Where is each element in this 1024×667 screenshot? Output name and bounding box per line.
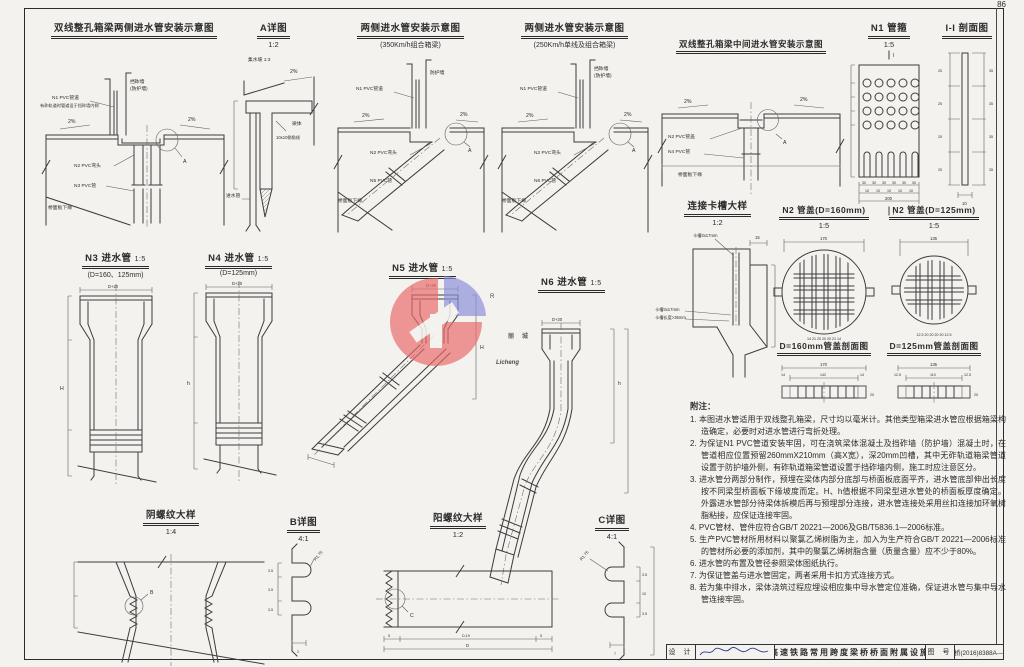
d17-detail-mark: B: [150, 590, 154, 596]
note-item: 5. 生产PVC管材所用材料以聚氯乙烯树脂为主，加入为生产符合GB/T 2022…: [690, 534, 1006, 558]
d12-inner: 110: [930, 373, 936, 377]
d9-dim: 170: [820, 236, 828, 241]
d3-drawing: 防护墙 N1 PVC管道 2% 2% N2 PVC弯头 N5 PVC管 桥面板下…: [328, 50, 493, 238]
d13-dim-h: H: [60, 386, 64, 392]
d6-dim: 30: [872, 181, 876, 185]
d18-lines: [292, 544, 311, 656]
d4-deck-label: 桥面板下缘: [502, 197, 526, 204]
d16-dim-top: D+20: [552, 317, 563, 322]
note-item: 3. 进水管分两部分制作，预埋在梁体内部分底部与桥面板底面平齐，进水管底部伸出长…: [690, 474, 1006, 522]
d4-title: 两侧进水管安装示意图: [521, 24, 627, 39]
note-item: 6. 进水管的布置及管径参照梁体图纸执行。: [690, 558, 1006, 570]
d18-dim: 3.5: [268, 569, 273, 573]
d1-n2-label: N2 PVC弯头: [74, 162, 101, 169]
d15-title: N5 进水管 1:5: [389, 264, 456, 279]
d19-dim: 5: [388, 634, 390, 638]
d6-dim: 10: [898, 189, 902, 193]
d7-dim: 35: [989, 102, 993, 106]
d11-inner: 142: [820, 373, 826, 377]
note-item: 1. 本图进水管适用于双线整孔箱梁，尺寸均以毫米计。其他类型箱梁进水管应根据箱梁…: [690, 414, 1006, 438]
d18-dim-b: 2: [297, 650, 299, 654]
d16-title: N6 进水管 1:5: [538, 278, 605, 293]
d4-detail-mark: A: [632, 148, 636, 154]
d11-title: D=160mm管盖剖面图: [777, 342, 872, 356]
d6-dim: 10: [909, 189, 913, 193]
d9-grate: [794, 254, 854, 330]
d12-title: D=125mm管盖剖面图: [887, 342, 982, 356]
d11-edge: 14: [781, 373, 785, 377]
d5-drawing: 2% 2% N2 PVC管盖 N4 PVC管 桥面板下缘 A: [652, 54, 850, 202]
page-number: 86: [997, 0, 1006, 9]
d20-title: C详图: [595, 516, 628, 531]
diagram-d6: N1 管箍 1:5 I 30 30 30 30 30 30 10 10 10 1…: [845, 18, 933, 221]
d1-detail-mark: A: [183, 159, 187, 165]
diagram-d7: I-I 剖面图 25 25 25 25 35 35 35 35 10: [928, 18, 1006, 209]
notes-title: 附注：: [690, 400, 1006, 413]
d4-lines: [498, 60, 652, 232]
d18-dim: 3.5: [268, 608, 273, 612]
d14-sub: (D=125mm): [186, 270, 291, 277]
note-item: 2. 为保证N1 PVC管道安装牢固，可在浇筑梁体混凝土及挡砟墙（防护墙）混凝土…: [690, 438, 1006, 474]
diagram-d20: C详图 4:1 R1.75 3.5 10 3.5 7: [562, 510, 662, 663]
d10-grate: [904, 258, 964, 324]
d17-drawing: B: [66, 536, 276, 666]
drawing-sheet: { "page": {"number": "86"}, "watermark":…: [0, 0, 1024, 667]
d4-n1-label: N1 PVC管道: [520, 85, 547, 92]
d20-drawing: R1.75 3.5 10 3.5 7: [562, 541, 662, 663]
d1-wall-label-1: 挡砟墙: [130, 78, 145, 85]
diagram-d10: N2 管盖(D=125mm) 1:5 135 12.5 20 20 20 20 …: [878, 200, 990, 342]
d20-dim: 10: [642, 592, 646, 596]
d13-dim-top: D+20: [108, 284, 119, 289]
diagram-d1: 双线整孔箱梁两侧进水管安装示意图 挡砟墙 (防护墙) N1 PVC管道 有砟轨道…: [34, 18, 234, 231]
d1-slope-right: 2%: [188, 117, 196, 123]
d7-dim: 25: [938, 102, 942, 106]
d6-dim: 10: [887, 189, 891, 193]
d1-wall-label-2: (防护墙): [130, 85, 148, 92]
notes-block: 附注： 1. 本图进水管适用于双线整孔箱梁，尺寸均以毫米计。其他类型箱梁进水管应…: [690, 400, 1006, 606]
d7-dim: 35: [989, 135, 993, 139]
d6-dim: 30: [892, 181, 896, 185]
d4-n2-label: N2 PVC弯头: [534, 149, 561, 156]
d18-dim: 3.5: [268, 588, 273, 592]
d6-title: N1 管箍: [868, 24, 910, 39]
d6-dim: 10: [876, 189, 880, 193]
d9-title: N2 管盖(D=160mm): [779, 206, 868, 220]
d2-title: A详图: [257, 24, 290, 39]
d6-dim: 10: [865, 189, 869, 193]
signature-scribble: [698, 646, 772, 658]
d20-radius-label: R1.75: [579, 549, 590, 561]
d20-lines: [605, 542, 624, 660]
d1-n3-label: N3 PVC管: [74, 182, 96, 189]
d9-scale: 1:5: [768, 221, 880, 230]
d4-n6-label: N6 PVC管: [534, 177, 556, 184]
diagram-d8: 连接卡槽大样 1:2 卡槽3x17mm 15 卡槽3x17mm 卡槽长度>35m…: [655, 196, 780, 379]
d7-dim: 25: [938, 135, 942, 139]
d6-scale: 1:5: [845, 40, 933, 49]
signatures: [696, 645, 775, 659]
d14-dim-h: h: [187, 381, 190, 387]
d9-drawing: 170 14 21 20 20 20 21 14: [768, 230, 880, 342]
document-title: 高速铁路常用跨度梁桥桥面附属设施: [775, 645, 926, 659]
d8-drawing: 卡槽3x17mm 15 卡槽3x17mm 卡槽长度>35mm: [655, 227, 780, 379]
d12-edge: 12.5: [964, 373, 971, 377]
d19-title: 阳螺纹大样: [430, 514, 486, 529]
d14-dim-top: D+20: [232, 281, 243, 286]
d3-slope-right: 2%: [460, 112, 468, 118]
d14-lines: [204, 293, 276, 475]
d5-deck-label: 桥面板下缘: [678, 171, 702, 178]
d19-scale: 1:2: [348, 530, 568, 539]
d19-dim: D-19: [462, 634, 470, 638]
d19-drawing: C 5 D-19 5 D: [348, 539, 568, 661]
diagram-d9: N2 管盖(D=160mm) 1:5 170 14 21 20 20 20 21…: [768, 200, 880, 342]
d5-detail-mark: A: [783, 140, 787, 146]
d11-side: 20: [870, 393, 874, 397]
d3-lines: [334, 60, 488, 232]
d18-scale: 4:1: [266, 534, 341, 543]
d7-title: I-I 剖面图: [942, 24, 991, 39]
d18-radius-label: R1.75: [313, 549, 324, 561]
d19-dim-total: D: [466, 643, 469, 648]
d3-n2-label: N2 PVC弯头: [370, 149, 397, 156]
d10-drawing: 135 12.5 20 20 20 20 12.5: [878, 230, 990, 342]
d14-title: N4 进水管 1:5: [205, 254, 272, 269]
d5-title: 双线整孔箱梁中间进水管安装示意图: [676, 40, 826, 54]
d2-chamfer-label: 10x10倒角线: [276, 134, 301, 141]
d7-dim: 35: [989, 168, 993, 172]
d1-slope-left: 2%: [68, 119, 76, 125]
d5-n2-label: N2 PVC管盖: [668, 133, 695, 140]
d20-dim-b: 7: [614, 652, 616, 656]
d7-dim: 25: [938, 69, 942, 73]
d19-detail-mark: C: [410, 613, 414, 619]
d10-title: N2 管盖(D=125mm): [889, 206, 978, 220]
d4-slope-left: 2%: [526, 113, 534, 119]
d4-slope-right: 2%: [624, 112, 632, 118]
d3-n5-label: N5 PVC管: [370, 177, 392, 184]
diagram-d13: N3 进水管 1:5 (D=160、125mm) D+20 H: [58, 248, 173, 488]
d18-title: B详图: [287, 518, 320, 533]
d10-scale: 1:5: [878, 221, 990, 230]
diagram-d17: 阴螺纹大样 1:4 B: [66, 505, 276, 666]
d14-drawing: D+20 h: [186, 277, 291, 485]
d3-slope-left: 2%: [362, 113, 370, 119]
d3-title: 两侧进水管安装示意图: [357, 24, 463, 39]
d20-dim: 3.5: [642, 612, 647, 616]
diagram-d19: 阳螺纹大样 1:2 C 5 D-19 5 D: [348, 508, 568, 661]
d8-dim-top: 15: [755, 235, 760, 240]
d19-dim: 5: [540, 634, 542, 638]
d8-scale: 1:2: [655, 218, 780, 227]
d6-dim: 30: [912, 181, 916, 185]
d3-deck-label: 桥面板下缘: [338, 197, 362, 204]
d20-scale: 4:1: [562, 532, 662, 541]
d4-drawing: 挡砟墙 (防护墙) N1 PVC管道 2% 2% N2 PVC弯头 N6 PVC…: [492, 50, 657, 238]
d1-n1-label: N1 PVC管道: [52, 94, 79, 101]
d13-drawing: D+20 H: [58, 280, 173, 488]
diagram-d18: B详图 4:1 R1.75 3.5 3.5 3.5 2: [266, 512, 341, 661]
d3-sub: (350Km/h组合箱梁): [328, 40, 493, 50]
note-item: 7. 为保证管盖与进水管固定，两者采用卡扣方式连接方式。: [690, 570, 1006, 582]
d8-title: 连接卡槽大样: [684, 202, 750, 217]
d2-drawing: 集水坡 1:3 2% 梁体 10x10倒角线 进水管: [226, 49, 321, 231]
d13-lines: [78, 296, 156, 482]
diagram-d14: N4 进水管 1:5 (D=125mm) D+20 h: [186, 248, 291, 485]
d11-edge: 14: [860, 373, 864, 377]
d1-deck-label: 桥面板下缘: [48, 204, 72, 211]
d16-dim-h: h: [618, 381, 621, 387]
note-item: 4. PVC管材、管件应符合GB/T 20221—2006及GB/T5836.1…: [690, 522, 1006, 534]
diagram-d2: A详图 1:2 集水坡 1:3 2% 梁体 10x10倒角线 进水管: [226, 18, 321, 231]
d7-dim: 25: [938, 168, 942, 172]
d12-edge: 12.5: [894, 373, 901, 377]
d4-sub: (250Km/h单线及组合箱梁): [492, 40, 657, 50]
d10-dim: 135: [930, 236, 938, 241]
note-item: 8. 若为集中排水，梁体浇筑过程应埋设相应集中导水管定位准确，保证进水管与集中导…: [690, 582, 1006, 606]
d2-lines: [244, 77, 318, 231]
d15-lines: [312, 295, 458, 455]
d11-total: 170: [820, 362, 828, 367]
d1-n1-sub: 有砟轨道时管道设于挡砟墙内侧: [40, 102, 99, 109]
d5-slope-right: 2%: [800, 97, 808, 103]
design-label: 设 计: [667, 645, 696, 659]
d5-n4-label: N4 PVC管: [668, 148, 690, 155]
d2-inlet-label: 进水管: [226, 192, 241, 199]
d1-drawing: 挡砟墙 (防护墙) N1 PVC管道 有砟轨道时管道设于挡砟墙内侧 2% 2% …: [34, 39, 234, 231]
d6-dim: 30: [882, 181, 886, 185]
diagram-d3: 两侧进水管安装示意图 (350Km/h组合箱梁) 防护墙 N1 PVC管道 2%…: [328, 18, 493, 238]
d3-wall-label: 防护墙: [430, 69, 445, 76]
d6-dim: 30: [902, 181, 906, 185]
d2-slope: 2%: [290, 69, 298, 75]
d4-wall-label-1: 挡砟墙: [594, 65, 609, 72]
d6-holes: [863, 79, 919, 177]
d2-body-label: 梁体: [292, 120, 302, 127]
diagram-d5: 双线整孔箱梁中间进水管安装示意图 2% 2% N2 PVC管盖 N4 PVC管 …: [652, 34, 850, 202]
figure-number-label: 图 号: [926, 645, 955, 659]
d13-title: N3 进水管 1:5: [82, 254, 149, 269]
title-block: 设 计 高速铁路常用跨度梁桥桥面附属设施 图 号 通桥(2016)8388A—8…: [666, 644, 1004, 660]
d4-wall-label-2: (防护墙): [594, 72, 612, 79]
d5-slope-left: 2%: [684, 99, 692, 105]
d6-section-mark-top: I: [893, 53, 894, 59]
d17-scale: 1:4: [66, 527, 276, 536]
diagram-d4: 两侧进水管安装示意图 (250Km/h单线及组合箱梁) 挡砟墙 (防护墙) N1…: [492, 18, 657, 238]
d12-side: 20: [974, 393, 978, 397]
d2-scale: 1:2: [226, 40, 321, 49]
d18-drawing: R1.75 3.5 3.5 3.5 2: [266, 543, 341, 661]
d8-slot1-label: 卡槽3x17mm: [693, 232, 718, 239]
d15-dim-top: D+20: [426, 283, 437, 288]
d8-lines: [693, 249, 767, 377]
d13-sub: (D=160、125mm): [58, 270, 173, 280]
d17-title: 阴螺纹大样: [143, 511, 199, 526]
figure-number: 通桥(2016)8388A—86: [955, 645, 1003, 659]
d7-dim: 35: [989, 69, 993, 73]
d7-drawing: 25 25 25 25 35 35 35 35 10: [928, 39, 1006, 209]
d12-total: 135: [930, 362, 938, 367]
d3-detail-mark: A: [468, 148, 472, 154]
d6-dim: 30: [862, 181, 866, 185]
d6-drawing: I 30 30 30 30 30 30 10 10 10 10 10 200 I: [845, 49, 933, 221]
d1-title: 双线整孔箱梁两侧进水管安装示意图: [51, 24, 217, 39]
d3-n1-label: N1 PVC管道: [356, 85, 383, 92]
d2-catch-label: 集水坡 1:3: [248, 56, 271, 63]
d20-dim: 3.5: [642, 573, 647, 577]
